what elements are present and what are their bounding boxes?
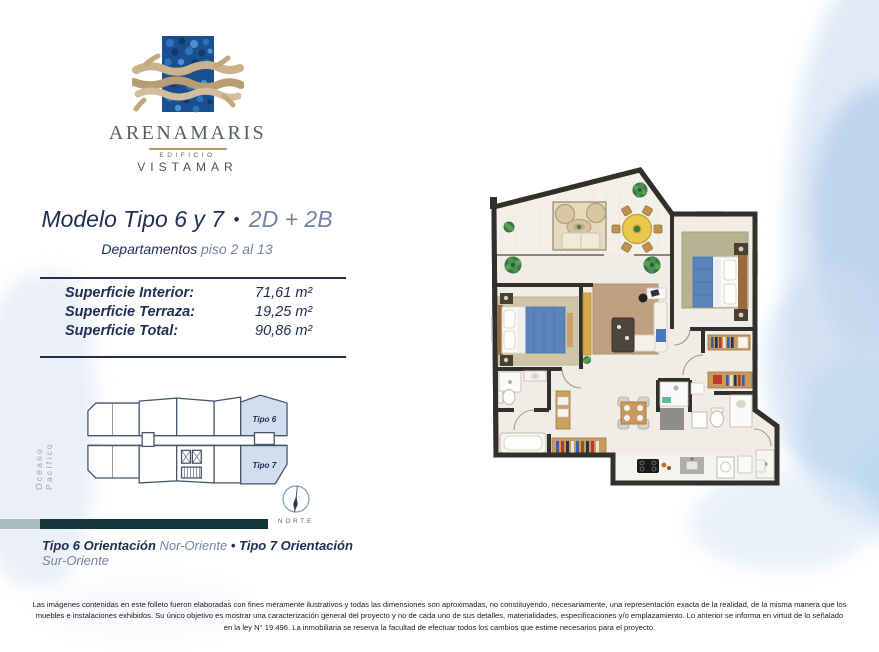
area-row-interior: Superficie Interior: 71,61 m² (40, 285, 346, 304)
divider-bottom (40, 356, 346, 358)
keyplan-unit (88, 403, 139, 436)
foot-bench (567, 313, 573, 347)
brand-divider (149, 148, 227, 150)
area-row-total: Superficie Total: 90,86 m² (40, 323, 346, 342)
area-label: Superficie Total: (65, 323, 178, 339)
pillow (504, 310, 515, 328)
legal-disclaimer: Las imágenes contenidas en este folleto … (32, 599, 847, 633)
toilet-icon (498, 391, 503, 403)
blanket (526, 307, 565, 353)
subtitle-floors: piso 2 al 13 (201, 241, 273, 257)
corridor-closet (556, 391, 570, 429)
compass-label: NORTE (272, 518, 320, 525)
title-model: Modelo Tipo 6 y 7 (41, 206, 224, 232)
area-value: 90,86 m² (255, 323, 312, 339)
area-row-terraza: Superficie Terraza: 19,25 m² (40, 304, 346, 323)
orientation-tipo7: Tipo 7 Orientación (239, 538, 353, 553)
logo-artwork (132, 36, 244, 118)
sofa (654, 302, 667, 352)
brand-subtitle-vistamar: VISTAMAR (60, 160, 315, 174)
coffee-table (612, 318, 634, 352)
terrace-sofa-set (553, 202, 606, 250)
orientation-tipo6-value: Nor-Oriente (160, 538, 228, 553)
keyplan-label-tipo6: Tipo 6 (253, 415, 277, 424)
pillow (724, 284, 736, 304)
dining-table-square (618, 397, 649, 429)
orientation-separator: • (231, 538, 236, 553)
keyplan-unit (139, 445, 176, 482)
area-label: Superficie Interior: (65, 285, 194, 301)
keyplan-unit (214, 445, 241, 482)
brochure-page: ARENAMARIS EDIFICIO VISTAMAR Modelo Tipo… (0, 0, 879, 652)
keyplan-unit (139, 398, 176, 435)
keyplan-unit (214, 397, 241, 435)
accent-bar-light (0, 519, 40, 529)
toilet-icon (711, 411, 724, 427)
brand-logo-block: ARENAMARIS EDIFICIO VISTAMAR (60, 36, 315, 174)
area-value: 19,25 m² (255, 304, 312, 320)
pillow (504, 331, 515, 349)
keyplan-unit (88, 445, 139, 478)
orientation-tipo6: Tipo 6 Orientación (42, 538, 156, 553)
pillow (724, 260, 736, 280)
keyplan-corridor-notch (255, 433, 275, 445)
title-bedbath: 2D + 2B (249, 206, 333, 232)
page-title: Modelo Tipo 6 y 7 • 2D + 2B (7, 206, 367, 233)
accent-bar-dark (40, 519, 268, 529)
brand-name: ARENAMARIS (60, 122, 315, 145)
subtitle-prefix: Departamentos (101, 241, 197, 257)
floor-plan (486, 157, 792, 489)
sofa-cushion-blue (656, 329, 666, 342)
gray-floor-cell (660, 408, 684, 430)
area-label: Superficie Terraza: (65, 304, 195, 320)
page-subtitle: Departamentos piso 2 al 13 (7, 241, 367, 257)
title-bullet: • (230, 210, 242, 229)
round-chair (587, 204, 606, 223)
keyplan-corridor-notch (142, 433, 154, 447)
orientation-line: Tipo 6 Orientación Nor-Oriente • Tipo 7 … (42, 538, 372, 568)
keyplan-label-tipo7: Tipo 7 (253, 461, 277, 470)
building-key-plan: Tipo 6 Tipo 7 (83, 392, 290, 491)
desk-chair (639, 294, 648, 303)
area-value: 71,61 m² (255, 285, 312, 301)
brand-subtitle-edificio: EDIFICIO (60, 152, 315, 159)
keyplan-unit (177, 398, 214, 435)
divider-top (40, 277, 346, 279)
cooktop-icon (637, 459, 659, 473)
wardrobe-strip (583, 293, 591, 355)
ocean-pacifico-label: Océano Pacífico (34, 398, 54, 490)
headboard (738, 255, 747, 309)
washer-icon (692, 412, 707, 428)
orientation-tipo7-value: Sur-Oriente (42, 553, 109, 568)
north-compass-icon (279, 483, 313, 517)
